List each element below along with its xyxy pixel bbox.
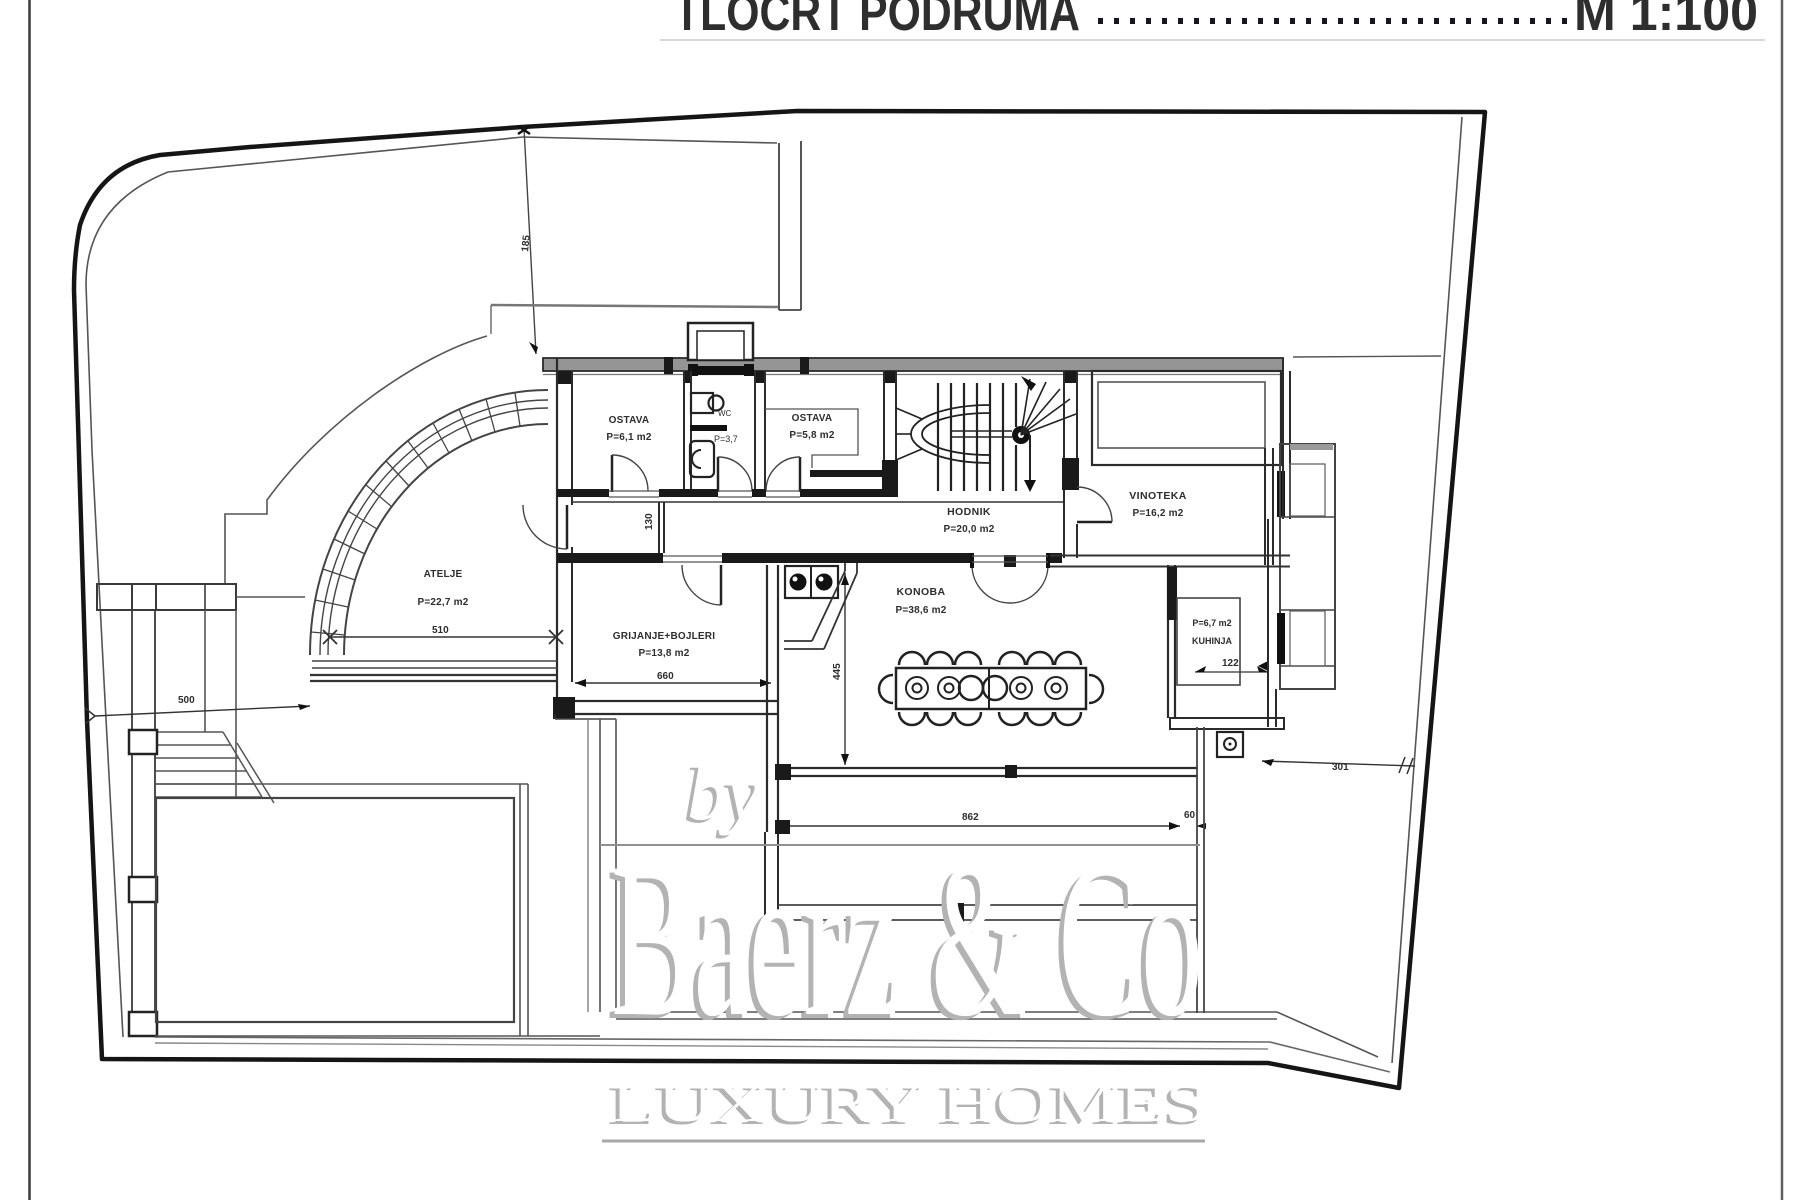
svg-text:VINOTEKA: VINOTEKA	[1129, 490, 1186, 502]
svg-text:510: 510	[432, 625, 449, 636]
svg-text:Baerz & Co: Baerz & Co	[611, 817, 1203, 1063]
svg-text:OSTAVA: OSTAVA	[609, 415, 650, 426]
svg-text:P=38,6 m2: P=38,6 m2	[895, 605, 946, 616]
svg-text:130: 130	[644, 513, 655, 530]
svg-text:660: 660	[657, 671, 674, 682]
svg-text:P=22,7 m2: P=22,7 m2	[417, 597, 468, 608]
svg-text:185: 185	[520, 234, 533, 252]
svg-text:P=16,2 m2: P=16,2 m2	[1132, 508, 1183, 519]
svg-text:WC: WC	[718, 409, 732, 418]
svg-text:P=20,0 m2: P=20,0 m2	[943, 524, 994, 535]
svg-text:TLOCRT PODRUMA: TLOCRT PODRUMA	[674, 0, 1080, 42]
svg-text:445: 445	[832, 663, 843, 680]
svg-text:GRIJANJE+BOJLERI: GRIJANJE+BOJLERI	[613, 631, 715, 642]
svg-text:KUHINJA: KUHINJA	[1192, 636, 1233, 646]
svg-text:P=3,7: P=3,7	[714, 434, 738, 444]
svg-text:ATELJE: ATELJE	[424, 569, 463, 580]
svg-text:P=5,8 m2: P=5,8 m2	[789, 430, 834, 441]
svg-text:P=6,7 m2: P=6,7 m2	[1192, 618, 1231, 628]
svg-text:LUXURY HOMES: LUXURY HOMES	[611, 1073, 1208, 1133]
svg-text:500: 500	[178, 695, 195, 706]
svg-text:122: 122	[1222, 658, 1239, 669]
svg-text:301: 301	[1332, 762, 1349, 773]
svg-text:P=13,8 m2: P=13,8 m2	[638, 648, 689, 659]
svg-text:KONOBA: KONOBA	[896, 586, 945, 598]
svg-text:OSTAVA: OSTAVA	[792, 413, 833, 424]
svg-text:HODNIK: HODNIK	[947, 506, 991, 518]
svg-text:M 1:100: M 1:100	[1574, 0, 1758, 42]
svg-text:P=6,1 m2: P=6,1 m2	[606, 432, 651, 443]
